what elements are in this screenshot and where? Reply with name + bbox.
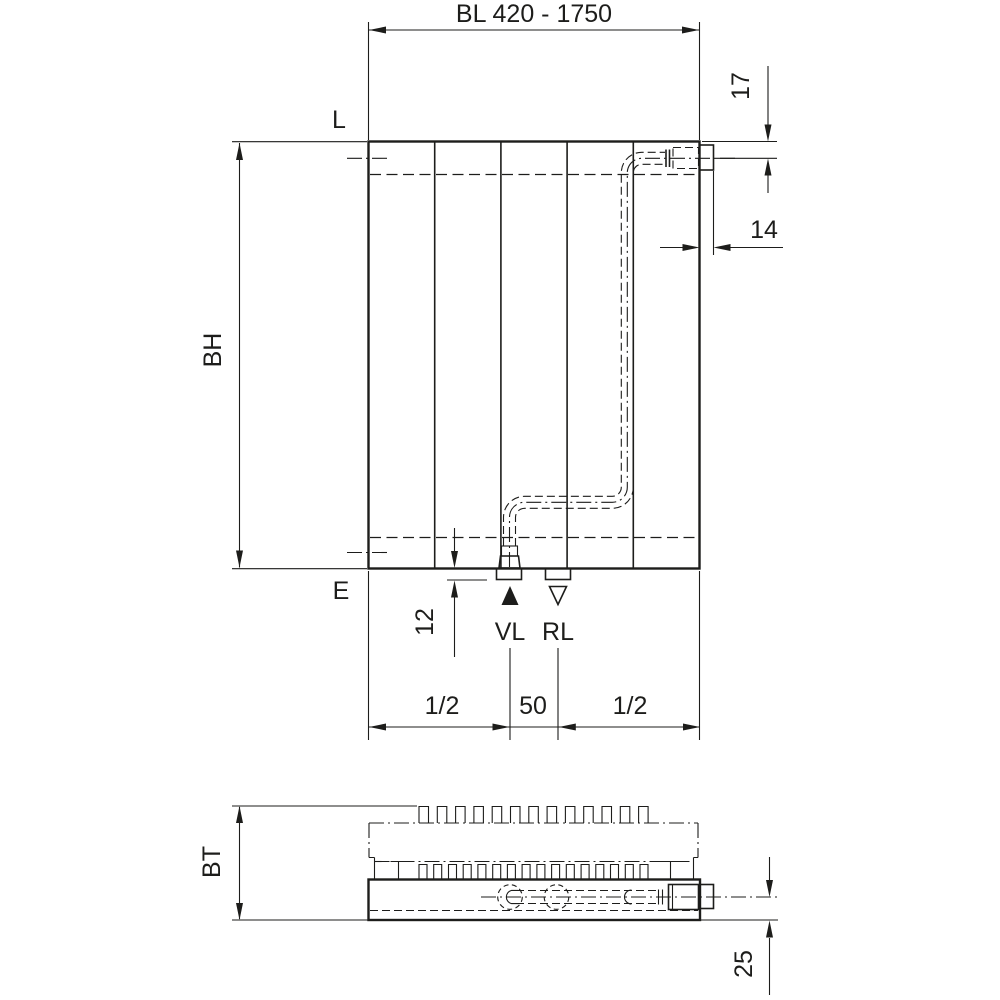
dim-connection-center-offset: 25 xyxy=(730,857,773,995)
arrowhead-down xyxy=(236,903,243,920)
label-connection-top: L xyxy=(332,106,346,134)
supply-stub xyxy=(497,569,522,580)
arrowhead-up xyxy=(451,581,458,598)
pipe-wall-outer xyxy=(504,152,666,546)
arrowhead-up xyxy=(766,921,773,938)
dim-build-height-label: BH xyxy=(199,333,227,368)
arrowhead-left xyxy=(714,244,731,251)
dim-14-label: 14 xyxy=(750,216,778,244)
label-return: RL xyxy=(542,618,574,646)
arrowhead-left xyxy=(369,724,386,731)
label-connection-bottom: E xyxy=(333,577,350,605)
return-triangle-icon xyxy=(550,587,567,605)
dim-connection-spacing: 1/2 50 1/2 xyxy=(369,571,701,740)
flow-markers: VL RL xyxy=(495,586,574,646)
panel-section-outline xyxy=(369,880,701,921)
arrowhead-left xyxy=(559,724,576,731)
dim-right-half-label: 1/2 xyxy=(613,692,648,720)
convector-outline xyxy=(369,823,698,880)
bottom-connection-fittings xyxy=(497,546,571,580)
label-supply: VL xyxy=(495,618,526,646)
arrowhead-right xyxy=(493,724,510,731)
arrowhead-right xyxy=(683,724,700,731)
arrowhead-down xyxy=(451,551,458,568)
convector-fins-upper xyxy=(419,807,648,824)
convector-fins-lower xyxy=(419,865,648,880)
radiator-outline xyxy=(369,142,700,569)
arrowhead-right xyxy=(682,27,699,34)
bottom-view: BT 25 xyxy=(198,806,778,995)
arrowhead-up xyxy=(236,806,243,823)
connection-nipple xyxy=(700,145,714,170)
arrowhead-right xyxy=(683,244,700,251)
front-view: BL 420 - 1750 BH L E 17 14 xyxy=(199,0,783,740)
internal-pipe xyxy=(504,152,738,567)
dim-25-label: 25 xyxy=(730,950,758,978)
section-pipe xyxy=(481,885,777,910)
panel-separation-lines xyxy=(435,142,634,569)
pipe-centerline xyxy=(510,158,738,567)
dim-build-depth-label: BT xyxy=(198,846,226,878)
dim-12-label: 12 xyxy=(411,608,439,636)
dim-17-label: 17 xyxy=(727,72,755,100)
arrowhead-down xyxy=(765,125,772,142)
dim-left-half-label: 1/2 xyxy=(425,692,460,720)
union-nut-ticks xyxy=(666,150,670,168)
dim-build-height: BH xyxy=(199,142,367,569)
arrowhead-up xyxy=(765,159,772,176)
dim-bottom-connection-offset: 12 xyxy=(411,528,487,657)
arrowhead-down xyxy=(236,551,243,568)
arrowhead-left xyxy=(369,27,386,34)
top-connection-fitting xyxy=(666,145,714,170)
dim-50-label: 50 xyxy=(519,692,547,720)
dim-nipple-width: 14 xyxy=(660,171,783,255)
pipe-wall-inner xyxy=(516,164,666,546)
radiator-technical-drawing-page: BL 420 - 1750 BH L E 17 14 xyxy=(0,0,1000,1000)
manifold-hidden-lines xyxy=(370,175,698,538)
arrowhead-up xyxy=(236,143,243,160)
dim-build-length: BL 420 - 1750 xyxy=(369,0,700,140)
arrowhead-down xyxy=(766,880,773,897)
return-stub xyxy=(546,569,571,580)
dim-build-length-label: BL 420 - 1750 xyxy=(456,0,612,28)
technical-drawing-canvas: BL 420 - 1750 BH L E 17 14 xyxy=(0,0,1000,1000)
supply-triangle-icon xyxy=(502,586,519,605)
